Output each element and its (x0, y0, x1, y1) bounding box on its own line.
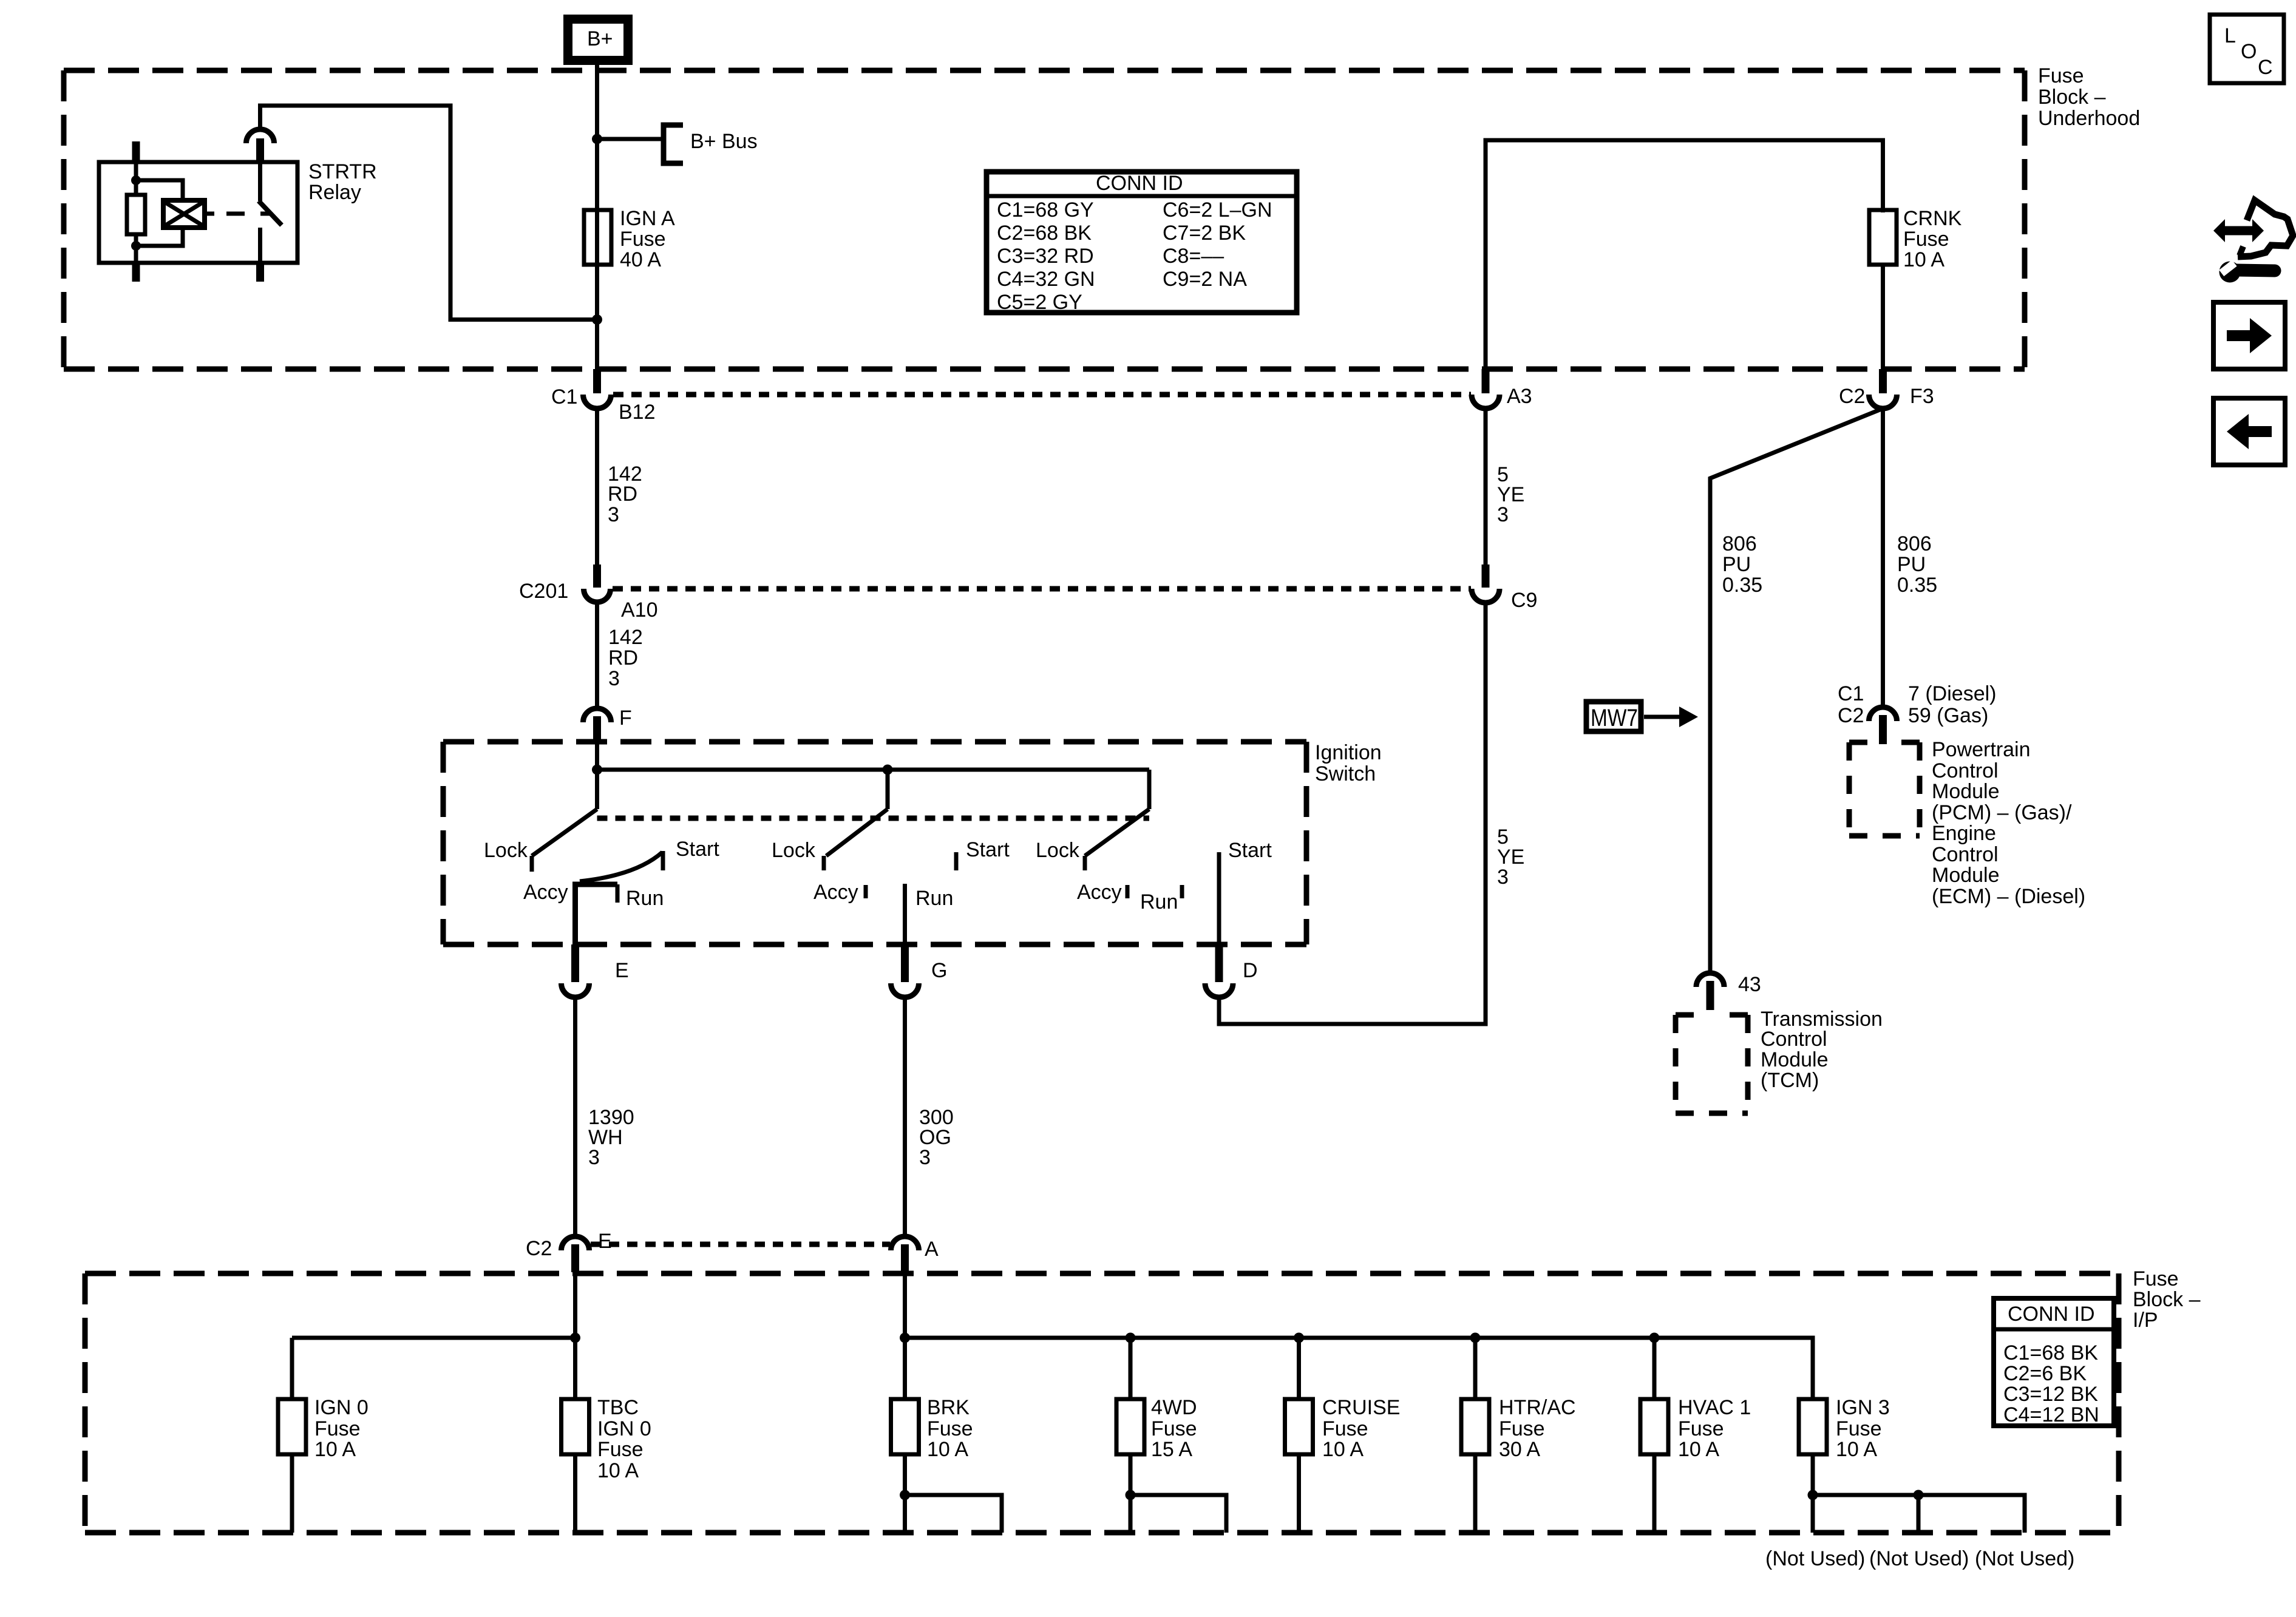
svg-text:A3: A3 (1507, 385, 1532, 408)
svg-text:30 A: 30 A (1499, 1438, 1540, 1461)
svg-text:Engine: Engine (1932, 822, 1996, 845)
svg-text:Run: Run (1140, 890, 1178, 914)
svg-text:Relay: Relay (308, 181, 361, 204)
svg-text:7 (Diesel): 7 (Diesel) (1908, 682, 1996, 705)
svg-text:C: C (2258, 56, 2273, 79)
svg-text:C2: C2 (1838, 704, 1864, 727)
svg-text:3: 3 (608, 503, 619, 526)
svg-text:Run: Run (915, 887, 953, 910)
svg-text:TBC: TBC (597, 1396, 639, 1419)
svg-text:IGN A: IGN A (620, 207, 675, 230)
svg-text:CRNK: CRNK (1903, 207, 1962, 230)
svg-text:Module: Module (1761, 1048, 1829, 1071)
svg-text:C2=6 BK: C2=6 BK (2003, 1362, 2087, 1385)
svg-text:A10: A10 (621, 598, 658, 622)
svg-text:10 A: 10 A (927, 1438, 968, 1461)
svg-text:43: 43 (1738, 973, 1761, 996)
svg-text:10 A: 10 A (1678, 1438, 1719, 1461)
svg-text:Fuse: Fuse (2038, 64, 2084, 87)
svg-text:3: 3 (1497, 503, 1509, 526)
svg-text:C1: C1 (1838, 682, 1864, 705)
svg-text:C201: C201 (519, 580, 568, 603)
svg-text:HVAC 1: HVAC 1 (1678, 1396, 1751, 1419)
svg-text:(ECM) – (Diesel): (ECM) – (Diesel) (1932, 885, 2085, 908)
svg-text:Start: Start (1228, 839, 1272, 862)
svg-text:C7=2 BK: C7=2 BK (1163, 222, 1246, 245)
svg-text:10 A: 10 A (1903, 248, 1944, 271)
svg-text:15 A: 15 A (1151, 1438, 1192, 1461)
svg-text:CONN ID: CONN ID (2008, 1303, 2095, 1326)
svg-text:C1=68 BK: C1=68 BK (2003, 1341, 2098, 1364)
svg-text:IGN 0: IGN 0 (314, 1396, 369, 1419)
svg-text:Lock: Lock (484, 839, 528, 862)
svg-text:E: E (598, 1230, 612, 1253)
svg-text:C5=2 GY: C5=2 GY (997, 291, 1082, 314)
svg-text:10 A: 10 A (1836, 1438, 1877, 1461)
svg-text:0.35: 0.35 (1722, 574, 1762, 597)
svg-text:BRK: BRK (927, 1396, 970, 1419)
svg-text:(PCM) – (Gas)/: (PCM) – (Gas)/ (1932, 801, 2072, 824)
svg-text:Fuse: Fuse (597, 1438, 644, 1461)
svg-text:RD: RD (608, 483, 637, 506)
svg-text:A: A (925, 1238, 939, 1261)
svg-text:Fuse: Fuse (1678, 1417, 1724, 1440)
svg-text:Control: Control (1932, 759, 1999, 782)
svg-text:F3: F3 (1910, 385, 1934, 408)
svg-text:Fuse: Fuse (2133, 1267, 2179, 1290)
svg-text:Fuse: Fuse (314, 1417, 361, 1440)
svg-text:3: 3 (1497, 866, 1509, 889)
svg-text:Accy: Accy (813, 881, 858, 904)
svg-text:3: 3 (919, 1146, 931, 1169)
svg-text:PU: PU (1897, 553, 1926, 576)
svg-text:C2=68 BK: C2=68 BK (997, 222, 1092, 245)
svg-text:Accy: Accy (523, 881, 568, 904)
svg-text:Fuse: Fuse (1151, 1417, 1197, 1440)
svg-text:Module: Module (1932, 780, 2000, 803)
svg-text:40 A: 40 A (620, 248, 661, 271)
svg-text:806: 806 (1722, 532, 1757, 555)
svg-text:CONN ID: CONN ID (1096, 172, 1183, 195)
svg-text:L: L (2224, 24, 2236, 47)
svg-text:(TCM): (TCM) (1761, 1069, 1819, 1092)
svg-text:C9=2 NA: C9=2 NA (1163, 268, 1247, 291)
svg-text:10 A: 10 A (314, 1438, 356, 1461)
svg-text:(Not Used): (Not Used) (1975, 1547, 2074, 1570)
svg-text:I/P: I/P (2133, 1309, 2158, 1332)
svg-text:HTR/AC: HTR/AC (1499, 1396, 1576, 1419)
svg-text:10 A: 10 A (1322, 1438, 1364, 1461)
svg-text:E: E (615, 959, 629, 982)
svg-text:C4=32 GN: C4=32 GN (997, 268, 1095, 291)
svg-text:Run: Run (626, 887, 664, 910)
svg-text:Underhood: Underhood (2038, 107, 2140, 130)
svg-text:Block –: Block – (2038, 86, 2106, 109)
svg-text:Control: Control (1761, 1028, 1827, 1051)
svg-text:Fuse: Fuse (620, 228, 666, 251)
svg-text:59 (Gas): 59 (Gas) (1908, 704, 1988, 727)
svg-text:STRTR: STRTR (308, 160, 377, 183)
svg-text:IGN 3: IGN 3 (1836, 1396, 1890, 1419)
svg-text:Ignition: Ignition (1315, 741, 1382, 764)
svg-text:C6=2 L–GN: C6=2 L–GN (1163, 198, 1272, 222)
svg-text:CRUISE: CRUISE (1322, 1396, 1400, 1419)
svg-text:Start: Start (966, 838, 1010, 861)
svg-text:Fuse: Fuse (1499, 1417, 1545, 1440)
svg-text:G: G (931, 959, 947, 982)
svg-text:3: 3 (588, 1146, 600, 1169)
svg-text:3: 3 (608, 667, 620, 690)
svg-text:Start: Start (676, 838, 719, 861)
svg-text:4WD: 4WD (1151, 1396, 1197, 1419)
svg-text:Lock: Lock (1036, 839, 1080, 862)
svg-text:C3=32 RD: C3=32 RD (997, 245, 1094, 268)
svg-text:10 A: 10 A (597, 1459, 639, 1482)
svg-text:IGN 0: IGN 0 (597, 1417, 651, 1440)
svg-text:(Not Used): (Not Used) (1869, 1547, 1969, 1570)
svg-text:C8=––: C8=–– (1163, 245, 1224, 268)
svg-text:Switch: Switch (1315, 762, 1376, 785)
svg-text:RD: RD (608, 646, 638, 670)
svg-text:Fuse: Fuse (1836, 1417, 1882, 1440)
svg-text:O: O (2241, 40, 2257, 63)
svg-text:D: D (1243, 959, 1258, 982)
svg-text:(Not Used): (Not Used) (1765, 1547, 1865, 1570)
svg-text:0.35: 0.35 (1897, 574, 1937, 597)
svg-text:B12: B12 (619, 401, 656, 424)
svg-text:C2: C2 (526, 1237, 552, 1260)
svg-text:Fuse: Fuse (1903, 228, 1949, 251)
svg-text:C4=12 BN: C4=12 BN (2003, 1403, 2099, 1426)
svg-text:Accy: Accy (1077, 881, 1122, 904)
svg-text:MW7: MW7 (1591, 705, 1638, 731)
svg-text:B+ Bus: B+ Bus (690, 130, 758, 153)
svg-text:Fuse: Fuse (1322, 1417, 1368, 1440)
svg-text:C2: C2 (1839, 385, 1865, 408)
svg-text:C1: C1 (551, 385, 577, 408)
svg-text:Control: Control (1932, 843, 1999, 866)
svg-text:PU: PU (1722, 553, 1751, 576)
svg-text:Module: Module (1932, 864, 2000, 887)
svg-text:F: F (619, 707, 632, 730)
svg-text:C9: C9 (1511, 589, 1537, 612)
svg-text:Block –: Block – (2133, 1288, 2201, 1311)
svg-text:Powertrain: Powertrain (1932, 738, 2031, 761)
svg-text:C3=12 BK: C3=12 BK (2003, 1383, 2098, 1406)
svg-text:Lock: Lock (772, 839, 816, 862)
svg-text:806: 806 (1897, 532, 1932, 555)
svg-text:Fuse: Fuse (927, 1417, 973, 1440)
svg-text:C1=68 GY: C1=68 GY (997, 198, 1094, 222)
svg-text:B+: B+ (587, 27, 613, 50)
svg-text:142: 142 (608, 626, 643, 649)
